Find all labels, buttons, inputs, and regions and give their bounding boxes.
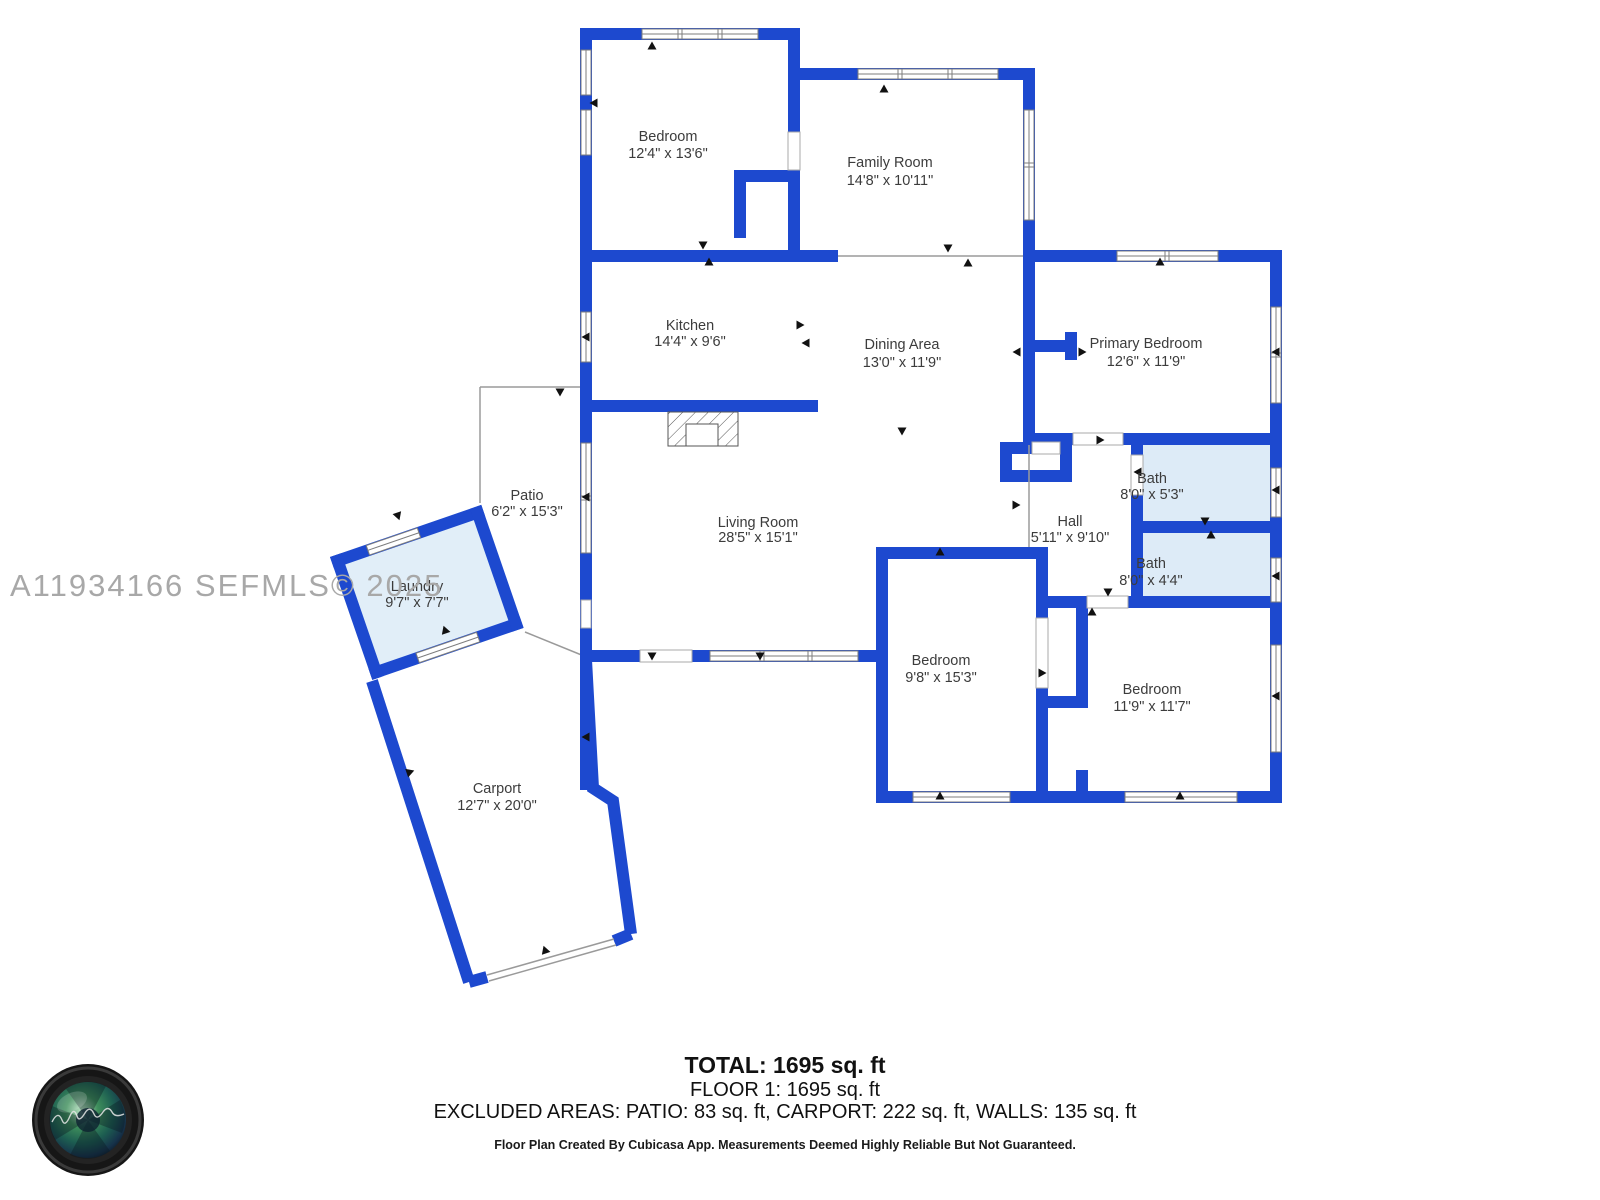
window [642,29,758,39]
room-label-dining-area: Dining Area [865,337,941,353]
window [581,50,591,95]
room-dims-bedroom-left: 9'8" x 15'3" [905,670,976,686]
room-dims-family-room: 14'8" x 10'11" [847,173,934,189]
room-dims-dining-area: 13'0" x 11'9" [863,355,941,371]
room-label-bath-1: Bath [1137,471,1167,487]
window [913,792,1010,802]
room-label-bath-2: Bath [1136,556,1166,572]
fireplace [668,412,738,446]
window [581,110,591,155]
excluded-areas-text: EXCLUDED AREAS: PATIO: 83 sq. ft, CARPOR… [434,1101,1137,1123]
room-label-bedroom-top: Bedroom [639,129,698,145]
window [1024,110,1034,220]
mls-watermark: A11934166 SEFMLS© 2025 [10,568,443,603]
footer-summary: TOTAL: 1695 sq. ft FLOOR 1: 1695 sq. ft … [434,1052,1137,1152]
photographer-logo [32,1064,144,1176]
room-dims-bedroom-right: 11'9" x 11'7" [1113,699,1190,715]
room-dims-carport: 12'7" x 20'0" [457,798,537,814]
window [1117,251,1218,261]
room-dims-kitchen: 14'4" x 9'6" [654,334,725,350]
room-label-bedroom-left: Bedroom [912,653,971,669]
room-label-carport: Carport [473,781,521,797]
room-dims-primary-bedroom: 12'6" x 11'9" [1107,354,1185,370]
patio-outline [480,387,580,503]
room-dims-patio: 6'2" x 15'3" [491,504,562,520]
floor-plan-svg: Bedroom 12'4" x 13'6" Family Room 14'8" … [0,0,1600,1200]
room-label-living-room: Living Room [718,515,799,531]
room-label-hall: Hall [1058,514,1083,530]
room-dims-living-room: 28'5" x 15'1" [718,530,798,546]
room-label-kitchen: Kitchen [666,318,714,334]
window [710,651,858,661]
room-label-family-room: Family Room [847,155,932,171]
room-label-patio: Patio [510,488,543,504]
room-dims-bath-2: 8'0" x 4'4" [1119,573,1182,589]
disclaimer-text: Floor Plan Created By Cubicasa App. Meas… [494,1138,1076,1152]
room-dims-bath-1: 8'0" x 5'3" [1120,487,1183,503]
openings-layer [838,256,1029,547]
room-label-bedroom-right: Bedroom [1123,682,1182,698]
window [858,69,998,79]
room-dims-hall: 5'11" x 9'10" [1031,530,1109,546]
room-label-primary-bedroom: Primary Bedroom [1090,336,1203,352]
total-area-text: TOTAL: 1695 sq. ft [684,1052,885,1078]
floor-area-text: FLOOR 1: 1695 sq. ft [690,1079,881,1101]
room-dims-bedroom-top: 12'4" x 13'6" [628,146,708,162]
floor-plan-page: Bedroom 12'4" x 13'6" Family Room 14'8" … [0,0,1600,1200]
